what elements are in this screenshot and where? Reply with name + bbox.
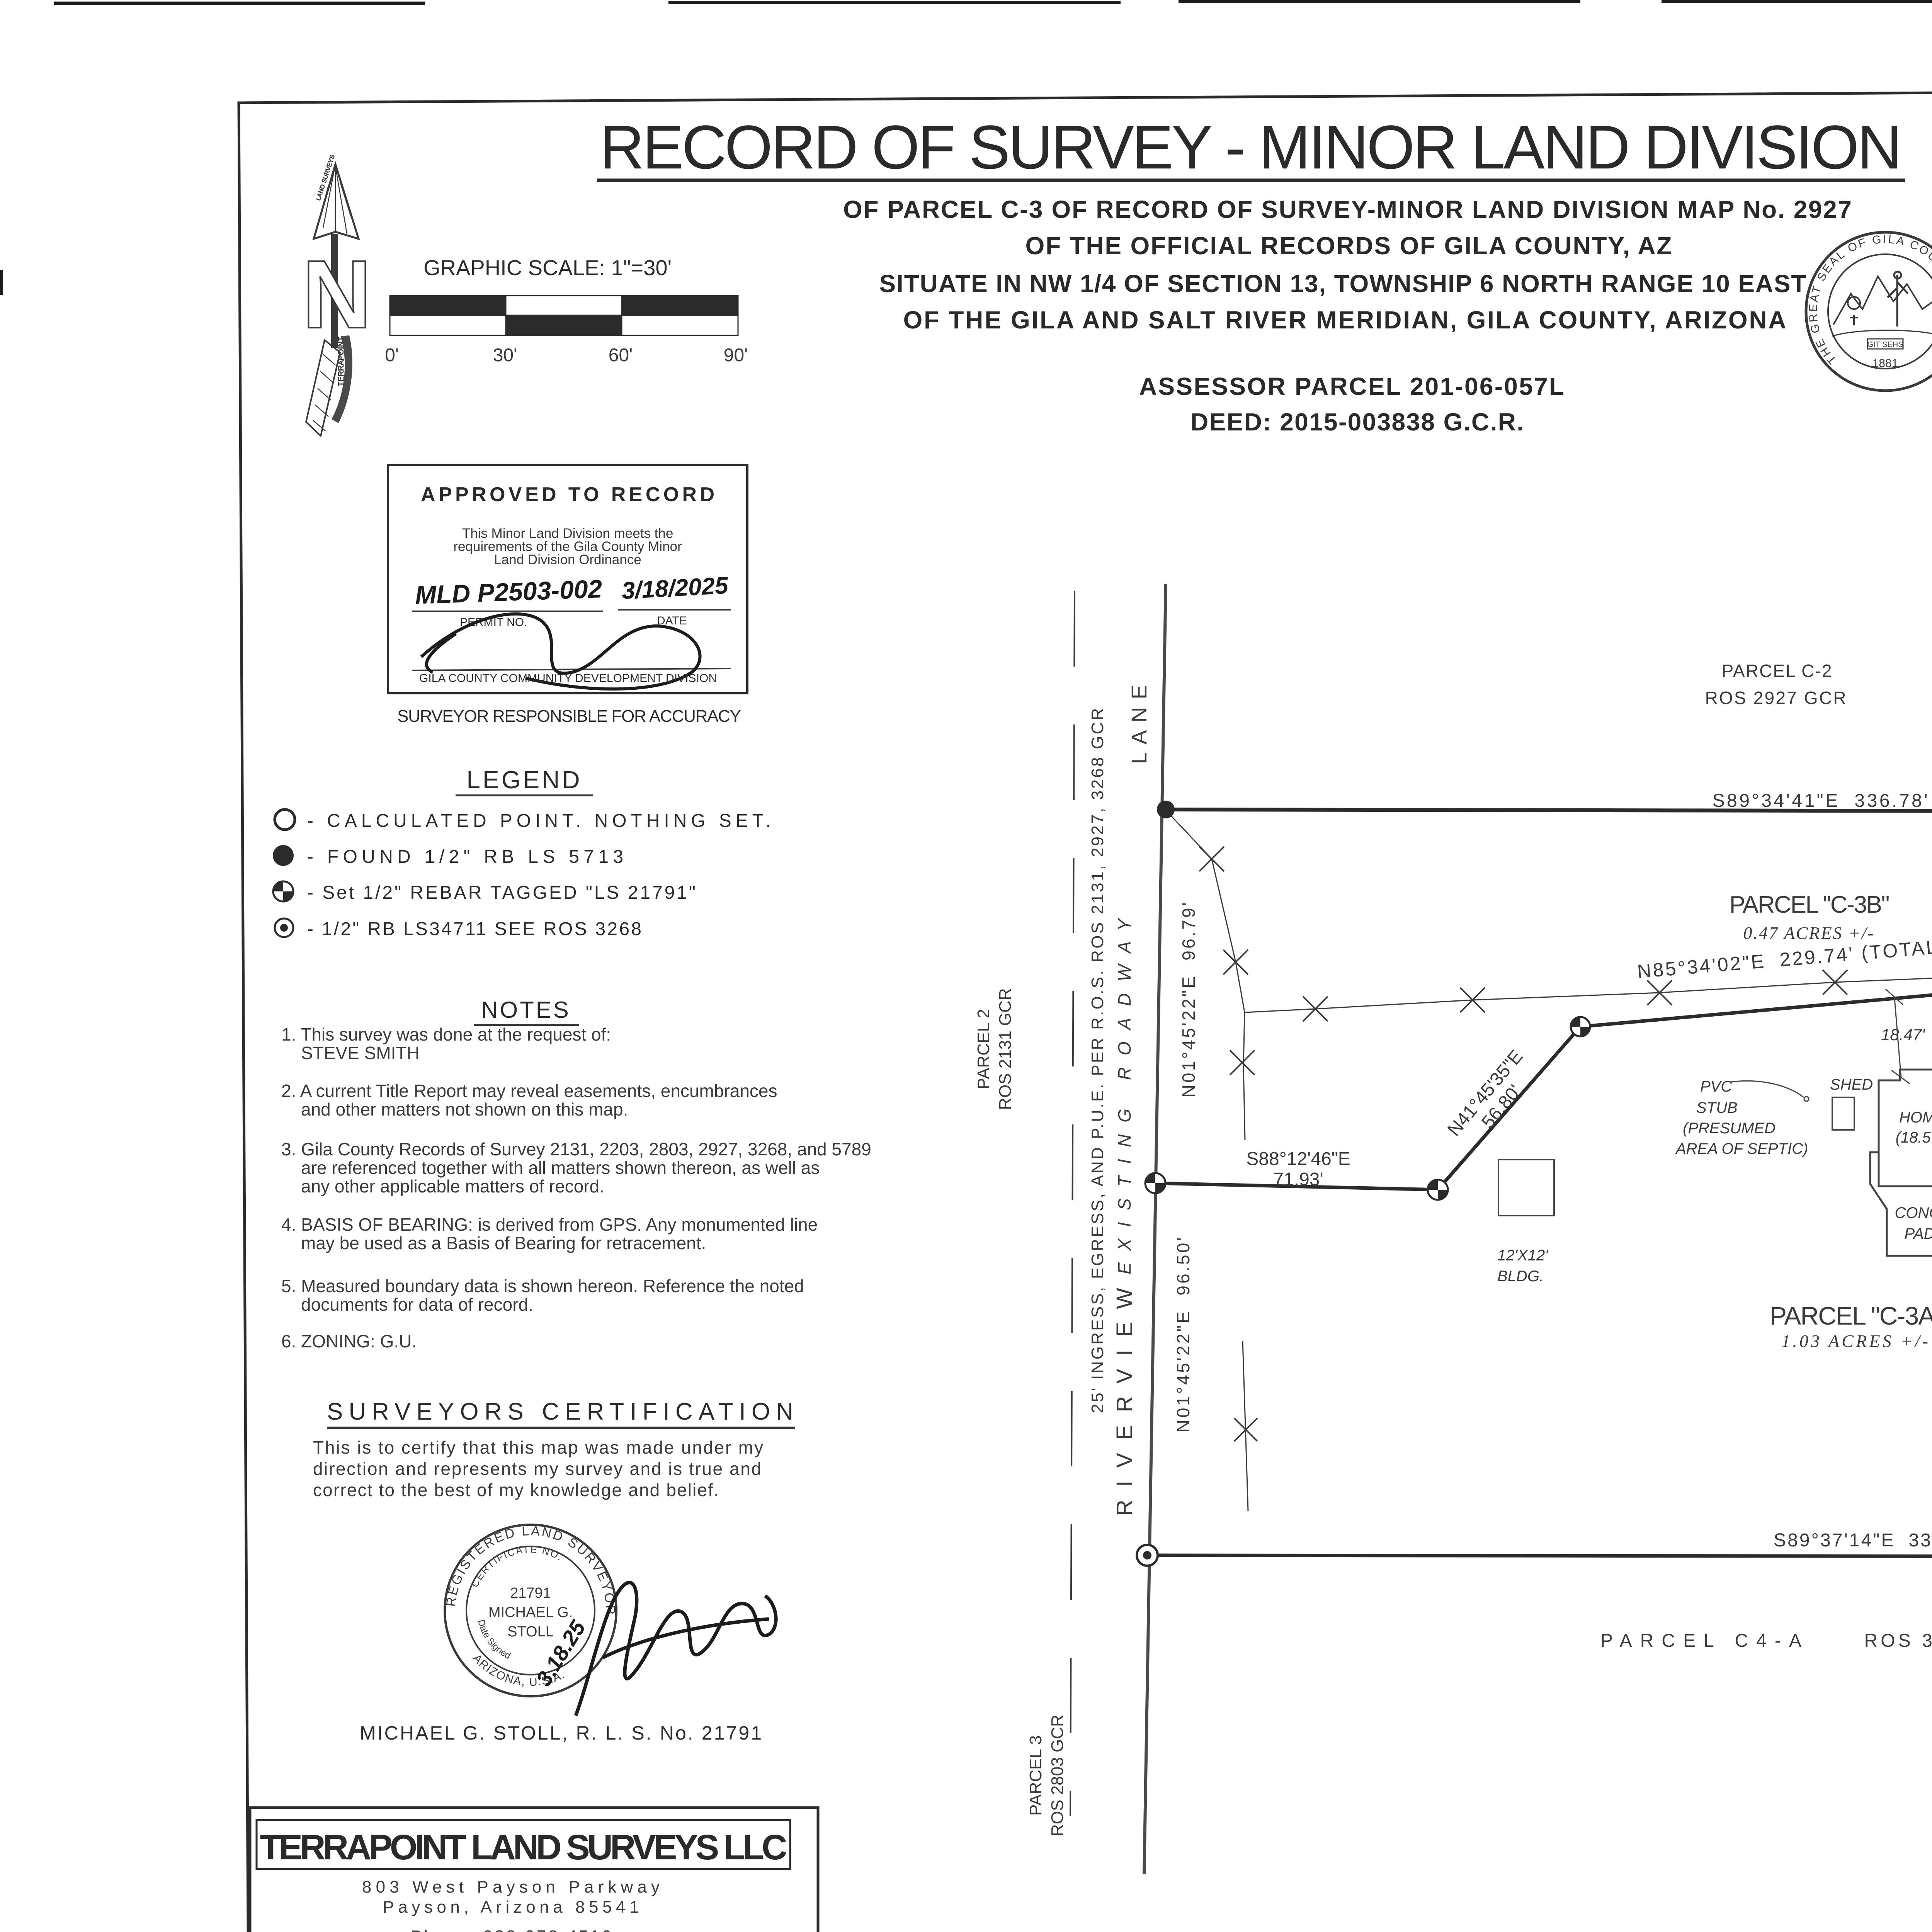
svg-text:5. Measured boundary data is s: 5. Measured boundary data is shown hereo… (281, 1276, 804, 1296)
svg-text:PARCEL "C-3A": PARCEL "C-3A" (1770, 1301, 1932, 1330)
svg-text:S89°34'41"E 336.78': S89°34'41"E 336.78' (1713, 791, 1928, 811)
svg-text:Land Division Ordinance: Land Division Ordinance (494, 552, 641, 567)
svg-text:S89°37'14"E 337.63': S89°37'14"E 337.63' (1774, 1530, 1932, 1551)
svg-text:GRAPHIC SCALE: 1"=30': GRAPHIC SCALE: 1"=30' (423, 255, 672, 280)
svg-text:TERRAPOINT: TERRAPOINT (337, 337, 345, 386)
svg-text:30': 30' (493, 345, 517, 366)
svg-text:PARCEL "C-3B": PARCEL "C-3B" (1730, 891, 1890, 918)
svg-text:and other matters not shown on: and other matters not shown on this map. (301, 1099, 628, 1119)
svg-text:DEED: 2015-003838 G.C.R.: DEED: 2015-003838 G.C.R. (1190, 408, 1524, 436)
svg-text:OF THE OFFICIAL RECORDS OF GIL: OF THE OFFICIAL RECORDS OF GILA COUNTY, … (1026, 232, 1672, 260)
svg-text:documents for data of record.: documents for data of record. (301, 1294, 533, 1315)
svg-text:LEGEND: LEGEND (466, 766, 582, 794)
svg-text:803 West Payson Parkway: 803 West Payson Parkway (362, 1878, 660, 1896)
svg-text:NOTES: NOTES (481, 997, 571, 1023)
svg-text:SHED: SHED (1830, 1076, 1873, 1093)
svg-text:4. BASIS OF BEARING: is derive: 4. BASIS OF BEARING: is derived from GPS… (281, 1214, 818, 1235)
svg-text:PVC: PVC (1700, 1078, 1732, 1095)
svg-text:- FOUND 1/2" RB LS 5713: - FOUND 1/2" RB LS 5713 (307, 847, 623, 867)
svg-text:GIT SEHS: GIT SEHS (1867, 340, 1903, 349)
svg-text:MICHAEL G.: MICHAEL G. (488, 1604, 573, 1621)
svg-text:90': 90' (724, 345, 748, 366)
svg-text:TERRAPOINT LAND SURVEYS LLC: TERRAPOINT LAND SURVEYS LLC (260, 1828, 787, 1867)
svg-text:LANE: LANE (1127, 678, 1151, 764)
svg-text:(PRESUMED: (PRESUMED (1683, 1120, 1776, 1137)
svg-text:PAD: PAD (1904, 1225, 1932, 1242)
svg-text:12'X12': 12'X12' (1497, 1247, 1548, 1264)
svg-text:60': 60' (609, 345, 633, 366)
svg-text:N01°45'22"E 96.79': N01°45'22"E 96.79' (1179, 903, 1199, 1098)
svg-text:BLDG.: BLDG. (1497, 1268, 1544, 1285)
svg-text:S88°12'46"E: S88°12'46"E (1246, 1149, 1350, 1169)
svg-text:21791: 21791 (510, 1585, 551, 1601)
svg-text:AREA OF SEPTIC): AREA OF SEPTIC) (1675, 1140, 1808, 1157)
svg-text:ROS 2927 GCR: ROS 2927 GCR (1705, 688, 1846, 708)
svg-text:STUB: STUB (1696, 1099, 1738, 1116)
svg-text:PARCEL 3: PARCEL 3 (1026, 1735, 1045, 1816)
svg-text:N01°45'22"E 96.50': N01°45'22"E 96.50' (1173, 1238, 1193, 1433)
svg-text:GILA COUNTY COMMUNITY DEVELOPM: GILA COUNTY COMMUNITY DEVELOPMENT DIVISI… (419, 672, 717, 685)
svg-text:any other applicable matters o: any other applicable matters of record. (301, 1176, 604, 1196)
svg-text:STEVE SMITH: STEVE SMITH (301, 1043, 420, 1063)
svg-text:ASSESSOR PARCEL 201-06-057L: ASSESSOR PARCEL 201-06-057L (1139, 372, 1564, 400)
svg-text:0': 0' (385, 345, 399, 366)
svg-text:PARCEL 2: PARCEL 2 (974, 1009, 993, 1089)
svg-text:are referenced together with a: are referenced together with all matters… (301, 1158, 820, 1178)
svg-text:18.47': 18.47' (1881, 1026, 1925, 1044)
svg-text:2. A current Title Report may: 2. A current Title Report may reveal eas… (281, 1081, 777, 1101)
svg-text:SURVEYOR RESPONSIBLE FOR ACCUR: SURVEYOR RESPONSIBLE FOR ACCURACY (397, 707, 741, 726)
svg-text:(18.5'S): (18.5'S) (1896, 1129, 1932, 1146)
svg-text:N: N (302, 240, 372, 348)
svg-text:ROS 2803 GCR: ROS 2803 GCR (1048, 1714, 1067, 1836)
svg-text:ROS 2131 GCR: ROS 2131 GCR (996, 988, 1015, 1110)
svg-text:Phone: 928-978-4516: Phone: 928-978-4516 (411, 1927, 611, 1932)
svg-text:STOLL: STOLL (507, 1624, 554, 1640)
svg-text:OF THE GILA AND SALT RIVER MER: OF THE GILA AND SALT RIVER MERIDIAN, GIL… (903, 306, 1786, 334)
svg-text:SITUATE IN NW 1/4 OF SECTION 1: SITUATE IN NW 1/4 OF SECTION 13, TOWNSHI… (879, 270, 1806, 298)
svg-text:3. Gila County Records of Surv: 3. Gila County Records of Survey 2131, 2… (281, 1139, 871, 1159)
svg-text:1. This survey was done at the: 1. This survey was done at the request o… (281, 1024, 611, 1044)
svg-text:CONC.: CONC. (1895, 1204, 1932, 1221)
svg-text:6. ZONING: G.U.: 6. ZONING: G.U. (281, 1331, 417, 1351)
svg-text:71.93': 71.93' (1273, 1169, 1323, 1190)
svg-text:1881: 1881 (1872, 357, 1898, 370)
svg-text:OF PARCEL C-3 OF RECORD OF SUR: OF PARCEL C-3 OF RECORD OF SURVEY-MINOR … (843, 196, 1852, 223)
svg-text:This is to certify that this m: This is to certify that this map was mad… (313, 1437, 763, 1458)
svg-text:PARCEL C-2: PARCEL C-2 (1722, 661, 1832, 681)
svg-text:correct to the best of my know: correct to the best of my knowledge and … (313, 1480, 719, 1500)
svg-text:- CALCULATED POINT. NOTHING SE: - CALCULATED POINT. NOTHING SET. (307, 811, 771, 831)
svg-text:RIVERVIEW: RIVERVIEW (1112, 1288, 1137, 1516)
svg-text:HOME: HOME (1899, 1109, 1932, 1126)
svg-text:may be used as a Basis of Bear: may be used as a Basis of Bearing for re… (301, 1233, 706, 1253)
svg-text:ROS 3268 G.C.R.: ROS 3268 G.C.R. (1864, 1631, 1932, 1651)
svg-text:3/18/2025: 3/18/2025 (621, 572, 730, 604)
svg-text:RECORD OF SURVEY - MINOR LAND: RECORD OF SURVEY - MINOR LAND DIVISION (600, 112, 1902, 182)
